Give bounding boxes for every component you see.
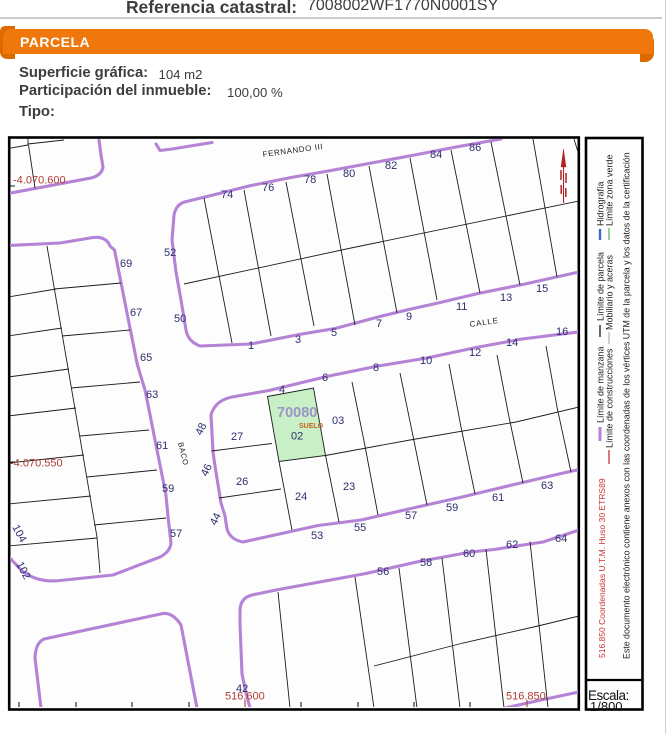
svg-text:24: 24 — [295, 491, 307, 503]
svg-text:3: 3 — [295, 334, 301, 346]
svg-text:SUELO: SUELO — [299, 423, 324, 430]
svg-text:23: 23 — [343, 481, 355, 493]
svg-text:Este documento electrónico con: Este documento electrónico contiene anex… — [622, 152, 632, 659]
svg-text:74: 74 — [221, 189, 233, 201]
svg-text:Mobiliario y aceras: Mobiliario y aceras — [605, 254, 615, 330]
svg-text:82: 82 — [385, 160, 397, 172]
svg-text:78: 78 — [304, 174, 316, 186]
svg-text:65: 65 — [140, 352, 152, 364]
svg-text:61: 61 — [492, 492, 504, 504]
svg-text:12: 12 — [469, 347, 481, 359]
svg-text:-4.070.550: -4.070.550 — [10, 458, 63, 470]
svg-text:50: 50 — [174, 313, 186, 325]
svg-text:63: 63 — [146, 389, 158, 401]
svg-text:11: 11 — [456, 301, 467, 313]
svg-text:02: 02 — [291, 431, 303, 443]
svg-text:Límite zona verde: Límite zona verde — [605, 154, 615, 226]
svg-text:10: 10 — [420, 355, 432, 367]
svg-text:67: 67 — [130, 307, 142, 319]
svg-text:8: 8 — [373, 362, 379, 374]
svg-text:6: 6 — [322, 372, 328, 384]
svg-text:4: 4 — [279, 384, 285, 396]
svg-text:14: 14 — [506, 337, 518, 349]
svg-text:9: 9 — [406, 311, 412, 323]
svg-text:516.850: 516.850 — [506, 691, 546, 703]
svg-text:55: 55 — [354, 522, 366, 534]
svg-text:58: 58 — [420, 557, 432, 569]
svg-text:86: 86 — [469, 142, 481, 154]
svg-text:Límite de construcciones: Límite de construcciones — [605, 348, 615, 448]
svg-text:5: 5 — [331, 327, 337, 339]
svg-text:70080: 70080 — [277, 405, 317, 421]
svg-text:64: 64 — [555, 533, 567, 545]
svg-text:60: 60 — [463, 548, 475, 560]
svg-text:61: 61 — [156, 440, 168, 452]
svg-text:62: 62 — [506, 539, 518, 551]
svg-text:1/800: 1/800 — [590, 699, 623, 714]
svg-text:516.850 Coordenadas U.T.M. Hus: 516.850 Coordenadas U.T.M. Huso 30 ETRS8… — [597, 478, 607, 658]
svg-text:59: 59 — [446, 502, 458, 514]
svg-text:52: 52 — [164, 247, 176, 259]
svg-text:03: 03 — [332, 415, 344, 427]
svg-text:13: 13 — [500, 292, 512, 304]
svg-text:56: 56 — [377, 566, 389, 578]
svg-text:69: 69 — [120, 258, 132, 270]
svg-text:53: 53 — [311, 530, 323, 542]
svg-text:84: 84 — [430, 149, 442, 161]
svg-text:27: 27 — [231, 431, 243, 443]
svg-text:57: 57 — [405, 510, 417, 522]
svg-text:-4.070.600: -4.070.600 — [13, 175, 66, 187]
svg-text:80: 80 — [343, 168, 355, 180]
svg-text:16: 16 — [556, 326, 568, 338]
svg-text:1: 1 — [248, 340, 254, 352]
svg-text:15: 15 — [536, 283, 548, 295]
svg-text:7: 7 — [376, 318, 382, 330]
svg-text:26: 26 — [236, 476, 248, 488]
svg-text:57: 57 — [170, 528, 182, 540]
svg-text:76: 76 — [262, 182, 274, 194]
svg-text:59: 59 — [162, 483, 174, 495]
svg-text:63: 63 — [541, 480, 553, 492]
